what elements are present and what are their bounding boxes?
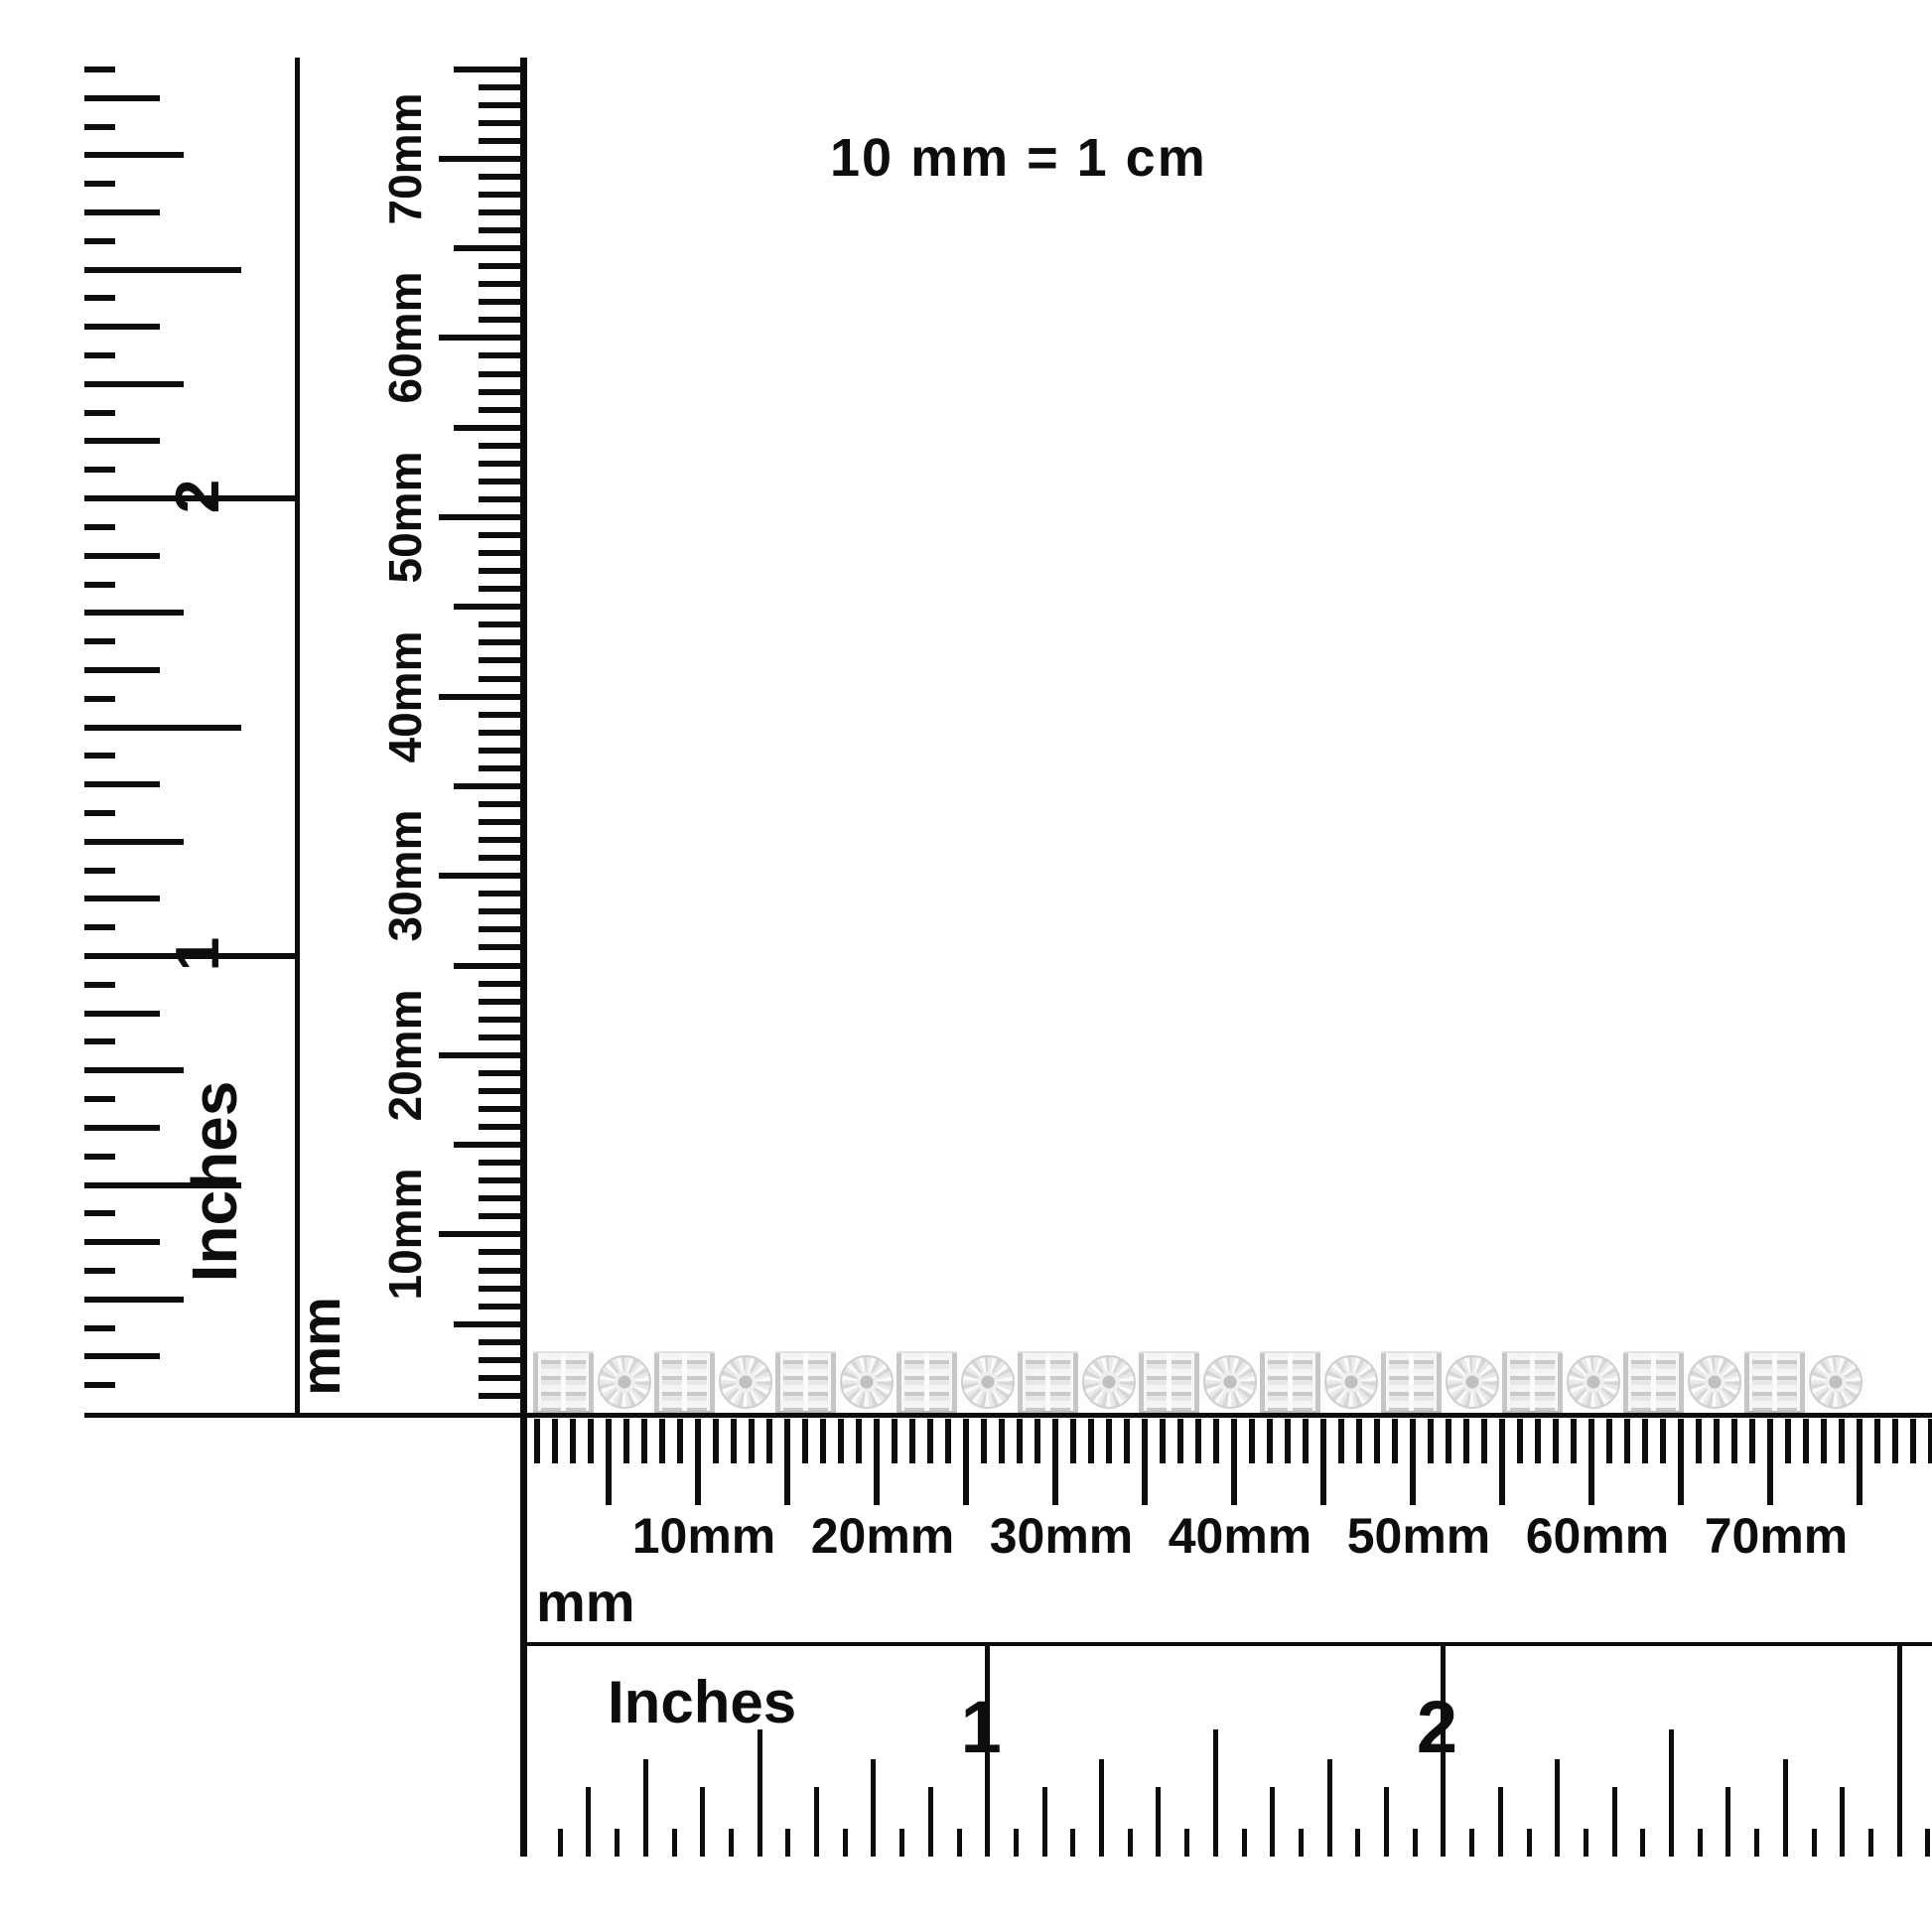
mm-tick [479, 281, 523, 287]
inch-tick [1242, 1829, 1247, 1857]
mm-tick [479, 1304, 523, 1310]
left-inch-ruler-spine [295, 58, 300, 1414]
mm-tick [479, 209, 523, 215]
mm-tick [1660, 1419, 1666, 1463]
inch-tick [84, 1182, 241, 1188]
inch-tick [84, 67, 115, 72]
mm-number: 10mm [615, 1510, 793, 1562]
bracelet-link-baguette [1381, 1351, 1442, 1413]
mm-tick [766, 1419, 772, 1463]
mm-tick [963, 1419, 969, 1505]
inch-tick [928, 1787, 933, 1857]
mm-tick [1892, 1419, 1898, 1463]
mm-tick [479, 1160, 523, 1166]
mm-tick [439, 335, 523, 341]
mm-tick [479, 908, 523, 914]
inch-number: 1 [164, 919, 233, 989]
inch-tick [84, 381, 184, 387]
round-diamond-motif [1203, 1355, 1257, 1409]
mm-number: 40mm [383, 622, 427, 771]
mm-tick [479, 1088, 523, 1094]
mm-tick [479, 748, 523, 754]
mm-tick [570, 1419, 576, 1463]
mm-tick [479, 84, 523, 90]
mm-tick [479, 174, 523, 180]
inch-tick [84, 1038, 115, 1044]
mm-number: 70mm [1687, 1510, 1865, 1562]
mm-tick [999, 1419, 1005, 1463]
inch-tick [1897, 1644, 1902, 1857]
left-mm-ruler-unit-label: mm [293, 1291, 348, 1402]
round-diamond-motif [1688, 1355, 1741, 1409]
mm-tick [1052, 1419, 1058, 1505]
mm-tick [1124, 1419, 1130, 1463]
inch-tick [1355, 1829, 1360, 1857]
mm-tick [1642, 1419, 1648, 1463]
round-diamond-motif [1567, 1355, 1620, 1409]
mm-tick [479, 999, 523, 1005]
inch-tick [84, 1154, 115, 1160]
inch-tick [84, 1096, 115, 1102]
bracelet-link-baguette [1623, 1351, 1684, 1413]
inch-tick [758, 1729, 762, 1857]
mm-tick [874, 1419, 880, 1505]
mm-tick [945, 1419, 951, 1463]
mm-tick [1017, 1419, 1023, 1463]
mm-tick [479, 981, 523, 987]
mm-tick [1535, 1419, 1541, 1463]
mm-tick [1374, 1419, 1380, 1463]
bottom-mm-ruler-unit-label: mm [536, 1577, 635, 1628]
mm-tick [479, 1195, 523, 1201]
mm-tick [479, 263, 523, 269]
mm-tick [439, 156, 523, 162]
bracelet-link-round-diamond [1078, 1351, 1139, 1413]
mm-tick [1874, 1419, 1880, 1463]
inch-tick [700, 1787, 705, 1857]
bracelet-link-round-diamond [957, 1351, 1018, 1413]
mm-tick [695, 1419, 701, 1505]
mm-tick [479, 712, 523, 718]
mm-tick [479, 926, 523, 932]
mm-tick [552, 1419, 558, 1463]
inch-tick [1384, 1787, 1389, 1857]
mm-tick [1731, 1419, 1737, 1463]
bracelet-link-baguette [1018, 1351, 1078, 1413]
inch-tick [84, 638, 115, 644]
inch-tick [558, 1829, 563, 1857]
inch-tick [84, 753, 115, 759]
mm-tick [1821, 1419, 1827, 1463]
bracelet-link-round-diamond [1563, 1351, 1623, 1413]
mm-tick [802, 1419, 808, 1463]
mm-tick [1678, 1419, 1684, 1505]
inch-tick [84, 1268, 115, 1274]
mm-tick [659, 1419, 665, 1463]
mm-tick [454, 245, 523, 251]
mm-tick [479, 765, 523, 771]
mm-tick [1928, 1419, 1932, 1463]
mm-tick [1606, 1419, 1612, 1463]
inch-tick [1868, 1829, 1873, 1857]
inch-tick [84, 1011, 160, 1017]
inch-tick [84, 696, 115, 702]
mm-tick [479, 1268, 523, 1274]
bracelet-link-round-diamond [836, 1351, 897, 1413]
mm-tick [479, 1070, 523, 1076]
mm-tick [1356, 1419, 1362, 1463]
mm-tick [479, 621, 523, 627]
inch-tick [871, 1759, 876, 1857]
inch-tick [84, 209, 160, 215]
mm-tick [479, 532, 523, 538]
round-diamond-motif [1082, 1355, 1136, 1409]
inch-tick [84, 352, 115, 358]
mm-tick [784, 1419, 790, 1505]
inch-tick [1469, 1829, 1474, 1857]
mm-tick [479, 299, 523, 305]
mm-tick [479, 837, 523, 843]
bracelet-link-baguette [1260, 1351, 1320, 1413]
inch-tick [899, 1829, 904, 1857]
mm-tick [820, 1419, 826, 1463]
inch-tick [1498, 1787, 1503, 1857]
mm-tick [588, 1419, 594, 1463]
inch-tick [84, 410, 115, 416]
inch-tick [1184, 1829, 1189, 1857]
bracelet-link-baguette [897, 1351, 957, 1413]
inch-tick [84, 1239, 160, 1245]
inch-tick [84, 1210, 115, 1216]
inch-tick [1584, 1829, 1588, 1857]
mm-tick [1070, 1419, 1076, 1463]
inch-tick [84, 667, 160, 673]
mm-tick [623, 1419, 629, 1463]
inch-tick [1812, 1829, 1817, 1857]
inch-tick [672, 1829, 677, 1857]
mm-tick [1142, 1419, 1148, 1505]
mm-tick [479, 568, 523, 574]
mm-number: 60mm [383, 263, 427, 412]
inch-tick [84, 238, 115, 244]
mm-tick [1714, 1419, 1720, 1463]
inch-tick [1840, 1787, 1845, 1857]
inch-ruler-left-border [521, 1644, 526, 1857]
mm-tick [1553, 1419, 1559, 1463]
mm-tick [1195, 1419, 1201, 1463]
mm-tick [677, 1419, 683, 1463]
inch-tick [84, 582, 115, 588]
bracelet-link-round-diamond [1199, 1351, 1260, 1413]
mm-tick [1249, 1419, 1255, 1463]
mm-tick [1303, 1419, 1309, 1463]
round-diamond-motif [840, 1355, 894, 1409]
inch-tick [1413, 1829, 1418, 1857]
mm-tick [534, 1419, 540, 1463]
inch-tick [84, 181, 115, 187]
mm-tick [479, 407, 523, 413]
inch-tick [785, 1829, 790, 1857]
mm-tick [1749, 1419, 1755, 1463]
inch-tick [1070, 1829, 1075, 1857]
mm-tick [454, 425, 523, 431]
inch-tick [84, 1382, 115, 1388]
mm-tick [479, 1286, 523, 1292]
mm-tick [479, 138, 523, 144]
mm-tick [454, 1142, 523, 1148]
mm-tick [479, 855, 523, 861]
mm-tick [479, 1393, 523, 1399]
inch-tick [84, 1297, 184, 1303]
mm-tick [1767, 1419, 1773, 1505]
bracelet-link-baguette [775, 1351, 836, 1413]
round-diamond-motif [961, 1355, 1015, 1409]
mm-tick [1392, 1419, 1398, 1463]
mm-tick [1446, 1419, 1451, 1463]
inch-tick [84, 152, 184, 158]
mm-tick [1410, 1419, 1416, 1505]
bracelet-link-baguette [1502, 1351, 1563, 1413]
inch-tick [84, 839, 184, 845]
diamond-tennis-bracelet-photo [533, 1351, 1865, 1413]
mm-tick [479, 1124, 523, 1130]
mm-tick [439, 873, 523, 879]
mm-tick [439, 694, 523, 700]
inch-tick [84, 467, 115, 473]
inch-tick [84, 1353, 160, 1359]
mm-tick [479, 461, 523, 467]
inch-tick [1270, 1787, 1275, 1857]
mm-tick [1696, 1419, 1702, 1463]
mm-tick [838, 1419, 844, 1463]
mm-tick [479, 1106, 523, 1112]
inch-tick [1042, 1787, 1047, 1857]
inch-tick [84, 267, 241, 273]
round-diamond-motif [719, 1355, 772, 1409]
mm-tick [479, 352, 523, 358]
mm-tick [749, 1419, 755, 1463]
mm-tick [641, 1419, 647, 1463]
inch-tick [1754, 1829, 1759, 1857]
mm-tick [479, 801, 523, 807]
mm-tick [479, 102, 523, 108]
inch-number: 2 [164, 462, 233, 531]
mm-number: 40mm [1151, 1510, 1329, 1562]
mm-tick [479, 227, 523, 233]
inch-tick [615, 1829, 620, 1857]
product-measurement-image: 10 mm = 1 cm Inches mm mm Inches 1210mm2… [0, 0, 1932, 1932]
mm-tick [454, 604, 523, 610]
mm-tick [1517, 1419, 1523, 1463]
mm-number: 20mm [793, 1510, 972, 1562]
mm-tick [1839, 1419, 1845, 1463]
mm-number: 20mm [383, 981, 427, 1130]
inch-tick [1099, 1759, 1104, 1857]
inch-tick [1156, 1787, 1161, 1857]
mm-tick [479, 496, 523, 502]
mm-tick [927, 1419, 933, 1463]
inch-tick [1925, 1829, 1930, 1857]
bracelet-link-baguette [1744, 1351, 1805, 1413]
inch-tick [84, 295, 115, 301]
mm-tick [1338, 1419, 1344, 1463]
round-diamond-motif [598, 1355, 651, 1409]
mm-tick [454, 963, 523, 969]
inch-tick [1527, 1829, 1532, 1857]
bracelet-link-baguette [1139, 1351, 1199, 1413]
mm-tick [479, 657, 523, 663]
mm-number: 50mm [1329, 1510, 1508, 1562]
mm-ruler-left-border [521, 1415, 526, 1641]
mm-tick [981, 1419, 987, 1463]
inch-tick [1014, 1829, 1019, 1857]
mm-tick [479, 1249, 523, 1255]
mm-tick [454, 1321, 523, 1327]
bracelet-link-round-diamond [1442, 1351, 1502, 1413]
mm-tick [1803, 1419, 1809, 1463]
mm-tick [1571, 1419, 1577, 1463]
mm-tick [1624, 1419, 1630, 1463]
inch-tick [84, 868, 115, 874]
inch-tick [957, 1829, 962, 1857]
bracelet-link-round-diamond [594, 1351, 654, 1413]
mm-tick [1106, 1419, 1112, 1463]
mm-tick [909, 1419, 915, 1463]
mm-tick [1320, 1419, 1326, 1505]
inch-tick [84, 896, 160, 901]
mm-tick [731, 1419, 737, 1463]
mm-tick [439, 1231, 523, 1237]
mm-number: 70mm [383, 84, 427, 233]
inch-tick [1783, 1759, 1788, 1857]
inch-tick [1299, 1829, 1304, 1857]
inch-tick [1725, 1787, 1730, 1857]
mm-tick [1428, 1419, 1434, 1463]
inch-tick [729, 1829, 734, 1857]
mm-tick [479, 479, 523, 484]
inch-tick [84, 553, 160, 559]
bracelet-link-round-diamond [715, 1351, 775, 1413]
inch-tick [843, 1829, 848, 1857]
round-diamond-motif [1324, 1355, 1378, 1409]
inch-tick [84, 1325, 115, 1331]
inch-number: 2 [1402, 1692, 1471, 1763]
mm-tick [479, 1339, 523, 1345]
mm-tick [1213, 1419, 1219, 1463]
mm-number: 30mm [972, 1510, 1151, 1562]
inch-tick [84, 438, 160, 444]
mm-tick [1463, 1419, 1469, 1463]
round-diamond-motif [1446, 1355, 1499, 1409]
inch-tick [643, 1759, 648, 1857]
mm-tick [1267, 1419, 1273, 1463]
inch-tick [84, 810, 115, 816]
inch-tick [84, 1067, 184, 1073]
inch-tick [814, 1787, 819, 1857]
round-diamond-motif [1809, 1355, 1863, 1409]
mm-tick [479, 586, 523, 592]
bottom-inch-ruler-spine [523, 1642, 1932, 1646]
inch-tick [1698, 1829, 1703, 1857]
inch-number: 1 [946, 1692, 1016, 1763]
mm-tick [479, 1017, 523, 1023]
bracelet-link-baguette [654, 1351, 715, 1413]
mm-tick [479, 891, 523, 897]
bottom-inch-ruler-unit-label: Inches [608, 1672, 796, 1733]
inch-tick [1640, 1829, 1645, 1857]
mm-tick [479, 944, 523, 950]
bracelet-link-round-diamond [1805, 1351, 1865, 1413]
mm-tick [479, 443, 523, 449]
mm-tick [479, 1375, 523, 1381]
mm-number: 10mm [383, 1160, 427, 1309]
inch-tick [84, 1125, 160, 1131]
mm-tick [479, 120, 523, 126]
mm-tick [1481, 1419, 1487, 1463]
inch-tick [586, 1787, 591, 1857]
mm-tick [479, 371, 523, 377]
mm-number: 60mm [1508, 1510, 1687, 1562]
mm-tick [892, 1419, 897, 1463]
main-baseline [84, 1413, 1932, 1418]
inch-tick [84, 324, 160, 330]
mm-tick [856, 1419, 862, 1463]
bracelet-link-round-diamond [1684, 1351, 1744, 1413]
mm-number: 30mm [383, 801, 427, 950]
mm-tick [479, 730, 523, 736]
mm-tick [1231, 1419, 1237, 1505]
inch-tick [84, 781, 160, 787]
mm-tick [479, 1357, 523, 1363]
inch-tick [1327, 1759, 1332, 1857]
mm-tick [479, 1035, 523, 1040]
inch-tick [84, 524, 115, 530]
mm-tick [479, 317, 523, 323]
mm-tick [1285, 1419, 1291, 1463]
mm-tick [606, 1419, 612, 1505]
inch-tick [84, 982, 115, 988]
inch-tick [84, 95, 160, 101]
mm-tick [713, 1419, 719, 1463]
mm-tick [1035, 1419, 1040, 1463]
bracelet-link-round-diamond [1320, 1351, 1381, 1413]
scale-note: 10 mm = 1 cm [830, 127, 1207, 189]
mm-number: 50mm [383, 443, 427, 592]
mm-tick [479, 676, 523, 682]
mm-tick [1088, 1419, 1094, 1463]
mm-tick [439, 514, 523, 520]
mm-tick [479, 389, 523, 395]
inch-tick [1128, 1829, 1133, 1857]
mm-tick [1177, 1419, 1183, 1463]
inch-tick [1213, 1729, 1218, 1857]
bracelet-link-baguette [533, 1351, 594, 1413]
mm-tick [1588, 1419, 1594, 1505]
inch-tick [84, 725, 241, 731]
mm-tick [479, 550, 523, 556]
mm-tick [479, 819, 523, 825]
inch-tick [1555, 1759, 1560, 1857]
mm-tick [1785, 1419, 1791, 1463]
mm-tick [1499, 1419, 1505, 1505]
mm-tick [439, 1052, 523, 1058]
mm-tick [479, 192, 523, 198]
inch-tick [1612, 1787, 1617, 1857]
inch-tick [84, 610, 184, 616]
mm-tick [1160, 1419, 1166, 1463]
mm-tick [479, 639, 523, 645]
inch-tick [84, 124, 115, 130]
